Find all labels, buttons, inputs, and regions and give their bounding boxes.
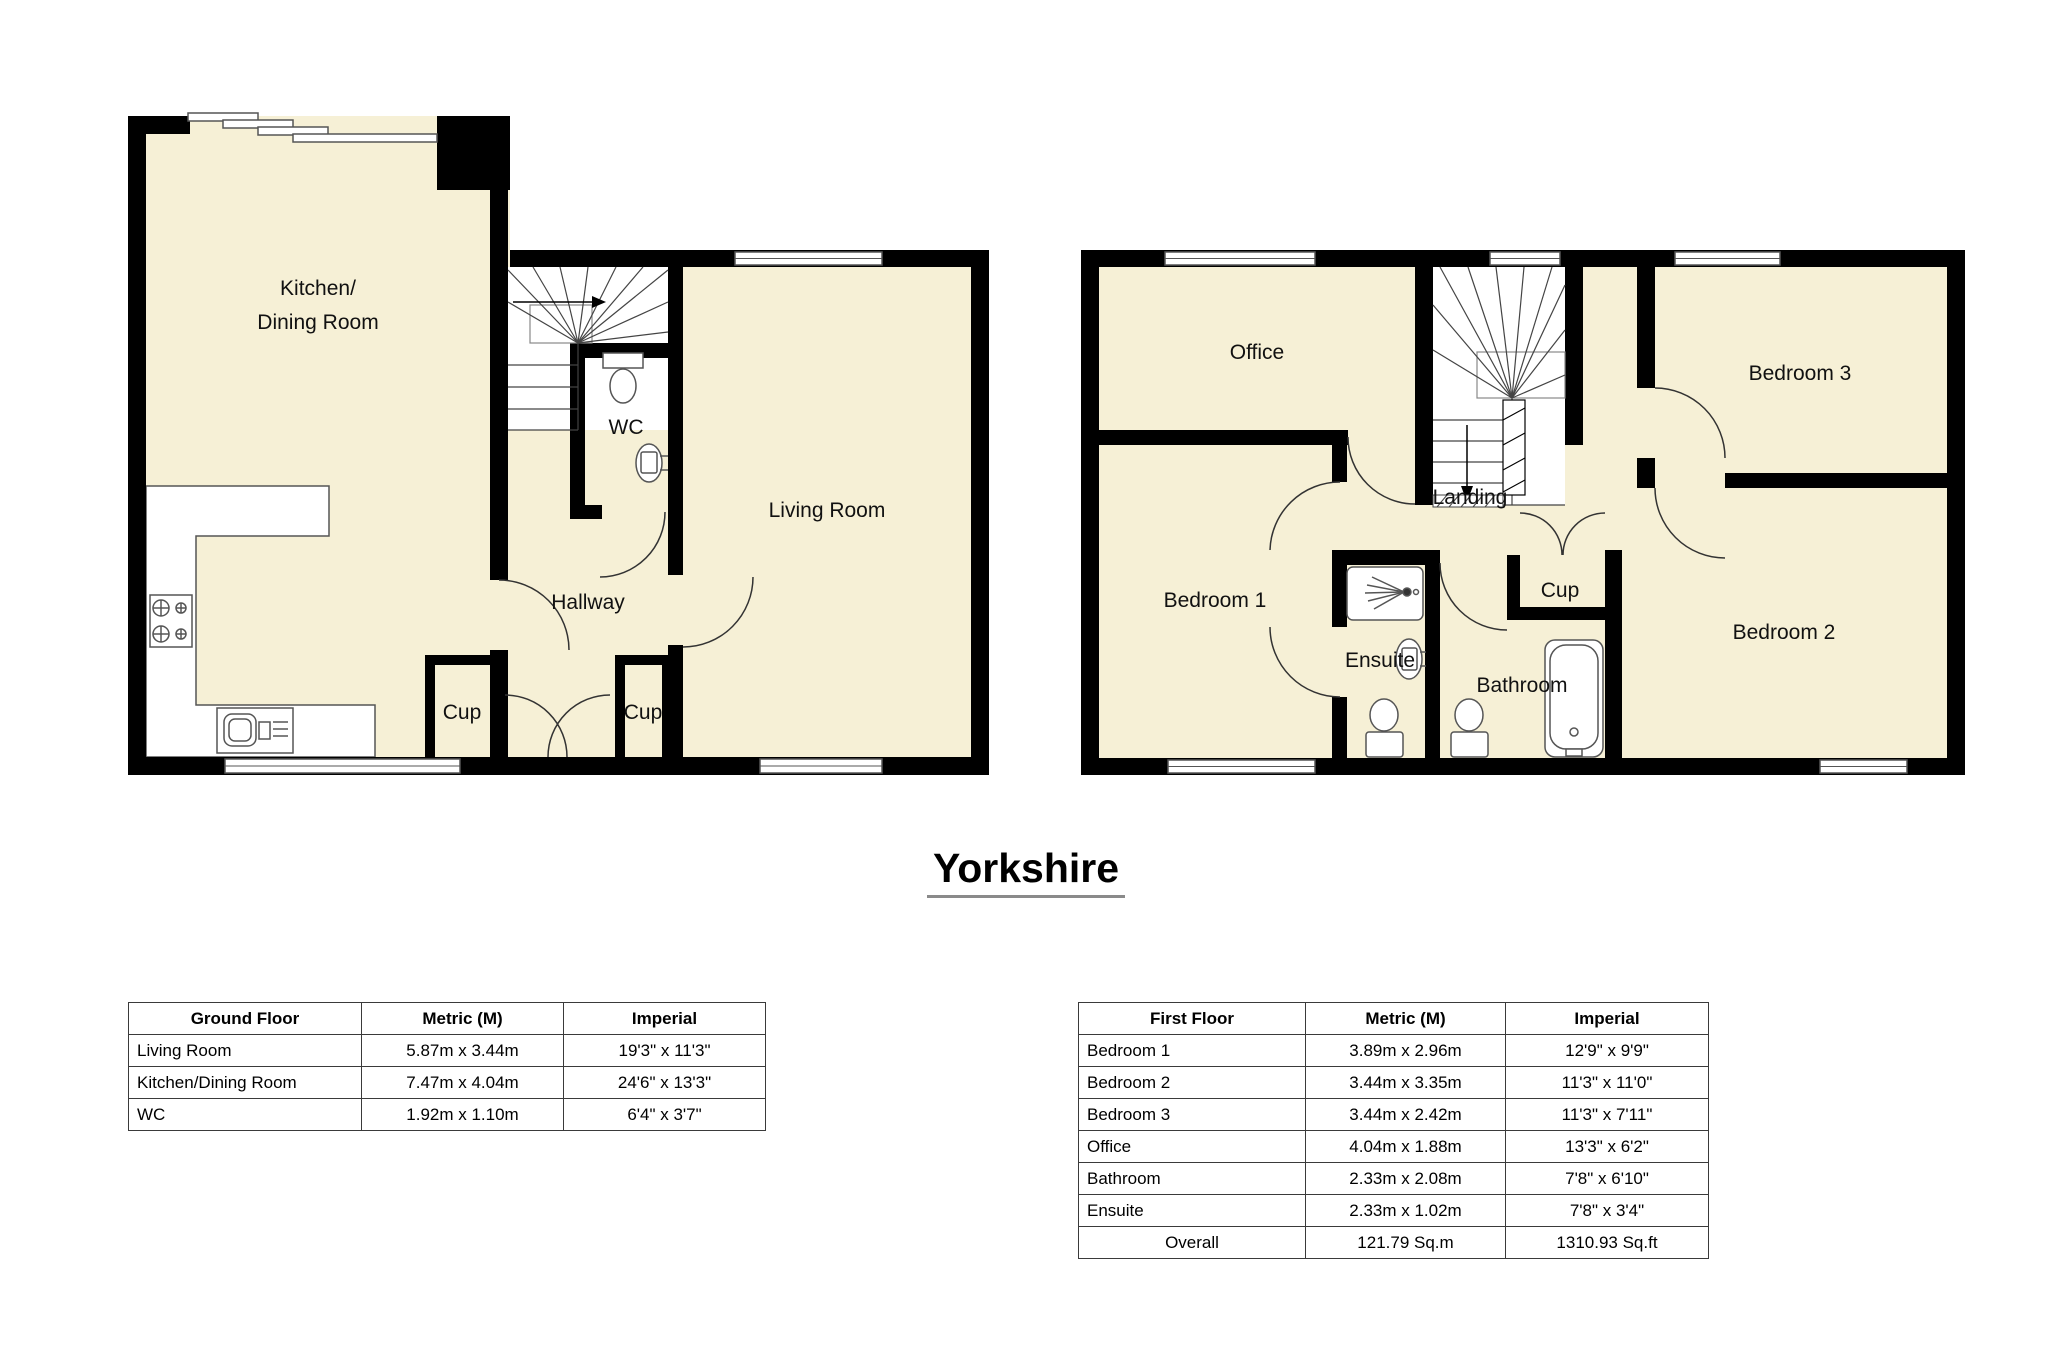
page-title-text: Yorkshire (927, 845, 1125, 898)
first-floor-table: First Floor Metric (M) Imperial Bedroom … (1078, 1002, 1709, 1259)
room-name-cell: Ensuite (1079, 1195, 1306, 1227)
metric-cell: 2.33m x 1.02m (1306, 1195, 1506, 1227)
metric-cell: 2.33m x 2.08m (1306, 1163, 1506, 1195)
first-floor-plan: Office Bedroom 3 Landing Bedroom 1 Ensui… (1081, 250, 1965, 775)
room-name-cell: WC (129, 1099, 362, 1131)
first-table-header-imperial: Imperial (1506, 1003, 1709, 1035)
page-title: Yorkshire (850, 845, 1202, 898)
bedroom2-label: Bedroom 2 (1733, 621, 1836, 644)
ground-floor-plan: Kitchen/ Dining Room WC Living Room Hall… (128, 113, 989, 775)
metric-cell: 3.44m x 2.42m (1306, 1099, 1506, 1131)
room-name-cell: Kitchen/Dining Room (129, 1067, 362, 1099)
overall-row: Overall 121.79 Sq.m 1310.93 Sq.ft (1079, 1227, 1709, 1259)
overall-label-cell: Overall (1079, 1227, 1306, 1259)
living-room-bottom-window-icon (760, 759, 882, 773)
bedroom1-label: Bedroom 1 (1164, 589, 1267, 612)
cup-left-label: Cup (443, 701, 482, 724)
kitchen-bottom-window-icon (225, 759, 460, 773)
table-row: Kitchen/Dining Room 7.47m x 4.04m 24'6" … (129, 1067, 766, 1099)
floor-plans-canvas: Kitchen/ Dining Room WC Living Room Hall… (0, 0, 2048, 1365)
ground-table-header-metric: Metric (M) (362, 1003, 564, 1035)
room-name-cell: Living Room (129, 1035, 362, 1067)
ground-table-header-imperial: Imperial (564, 1003, 766, 1035)
kitchen-dining-label-line2: Dining Room (257, 311, 378, 334)
ground-floor-table: Ground Floor Metric (M) Imperial Living … (128, 1002, 766, 1131)
cup-first-floor-label: Cup (1541, 579, 1580, 602)
imperial-cell: 7'8" x 6'10" (1506, 1163, 1709, 1195)
room-name-cell: Bedroom 3 (1079, 1099, 1306, 1131)
office-label: Office (1230, 341, 1284, 364)
table-row: Bathroom 2.33m x 2.08m 7'8" x 6'10" (1079, 1163, 1709, 1195)
hallway-label: Hallway (551, 591, 625, 614)
wc-label: WC (609, 416, 644, 439)
table-row: Office 4.04m x 1.88m 13'3" x 6'2" (1079, 1131, 1709, 1163)
ground-floor-footprint (128, 116, 989, 775)
overall-metric-cell: 121.79 Sq.m (1306, 1227, 1506, 1259)
bathtub-icon (1545, 640, 1603, 757)
bedroom3-window-icon (1675, 252, 1780, 265)
bathroom-label: Bathroom (1476, 674, 1567, 697)
imperial-cell: 19'3" x 11'3" (564, 1035, 766, 1067)
metric-cell: 3.89m x 2.96m (1306, 1035, 1506, 1067)
bedroom3-label: Bedroom 3 (1749, 362, 1852, 385)
room-name-cell: Bedroom 1 (1079, 1035, 1306, 1067)
metric-cell: 4.04m x 1.88m (1306, 1131, 1506, 1163)
imperial-cell: 12'9" x 9'9" (1506, 1035, 1709, 1067)
sink-icon (217, 708, 293, 753)
imperial-cell: 6'4" x 3'7" (564, 1099, 766, 1131)
imperial-cell: 11'3" x 7'11" (1506, 1099, 1709, 1131)
imperial-cell: 7'8" x 3'4" (1506, 1195, 1709, 1227)
ground-table-header-row: Ground Floor Metric (M) Imperial (129, 1003, 766, 1035)
imperial-cell: 11'3" x 11'0" (1506, 1067, 1709, 1099)
table-row: Bedroom 3 3.44m x 2.42m 11'3" x 7'11" (1079, 1099, 1709, 1131)
landing-label: Landing (1433, 486, 1508, 509)
imperial-cell: 13'3" x 6'2" (1506, 1131, 1709, 1163)
kitchen-dining-label-line1: Kitchen/ (280, 277, 356, 300)
cup-right-label: Cup (624, 701, 663, 724)
table-row: WC 1.92m x 1.10m 6'4" x 3'7" (129, 1099, 766, 1131)
living-room-top-window-icon (735, 252, 882, 265)
overall-imperial-cell: 1310.93 Sq.ft (1506, 1227, 1709, 1259)
first-table-header-metric: Metric (M) (1306, 1003, 1506, 1035)
stove-icon (150, 595, 192, 647)
room-name-cell: Bathroom (1079, 1163, 1306, 1195)
room-name-cell: Office (1079, 1131, 1306, 1163)
bedroom1-window-icon (1168, 760, 1315, 773)
first-table-header-row: First Floor Metric (M) Imperial (1079, 1003, 1709, 1035)
room-name-cell: Bedroom 2 (1079, 1067, 1306, 1099)
stairs-rail-icon (1503, 400, 1525, 495)
bedroom2-window-icon (1820, 760, 1907, 773)
table-row: Ensuite 2.33m x 1.02m 7'8" x 3'4" (1079, 1195, 1709, 1227)
living-room-label: Living Room (769, 499, 886, 522)
ground-table-header-floor: Ground Floor (129, 1003, 362, 1035)
imperial-cell: 24'6" x 13'3" (564, 1067, 766, 1099)
metric-cell: 1.92m x 1.10m (362, 1099, 564, 1131)
landing-window-icon (1490, 252, 1560, 265)
ensuite-label: Ensuite (1345, 649, 1415, 672)
office-window-icon (1165, 252, 1315, 265)
table-row: Bedroom 2 3.44m x 3.35m 11'3" x 11'0" (1079, 1067, 1709, 1099)
metric-cell: 3.44m x 3.35m (1306, 1067, 1506, 1099)
first-table-header-floor: First Floor (1079, 1003, 1306, 1035)
shower-icon (1347, 567, 1423, 620)
first-stairwell-area (1433, 267, 1565, 505)
table-row: Living Room 5.87m x 3.44m 19'3" x 11'3" (129, 1035, 766, 1067)
table-row: Bedroom 1 3.89m x 2.96m 12'9" x 9'9" (1079, 1035, 1709, 1067)
metric-cell: 5.87m x 3.44m (362, 1035, 564, 1067)
metric-cell: 7.47m x 4.04m (362, 1067, 564, 1099)
